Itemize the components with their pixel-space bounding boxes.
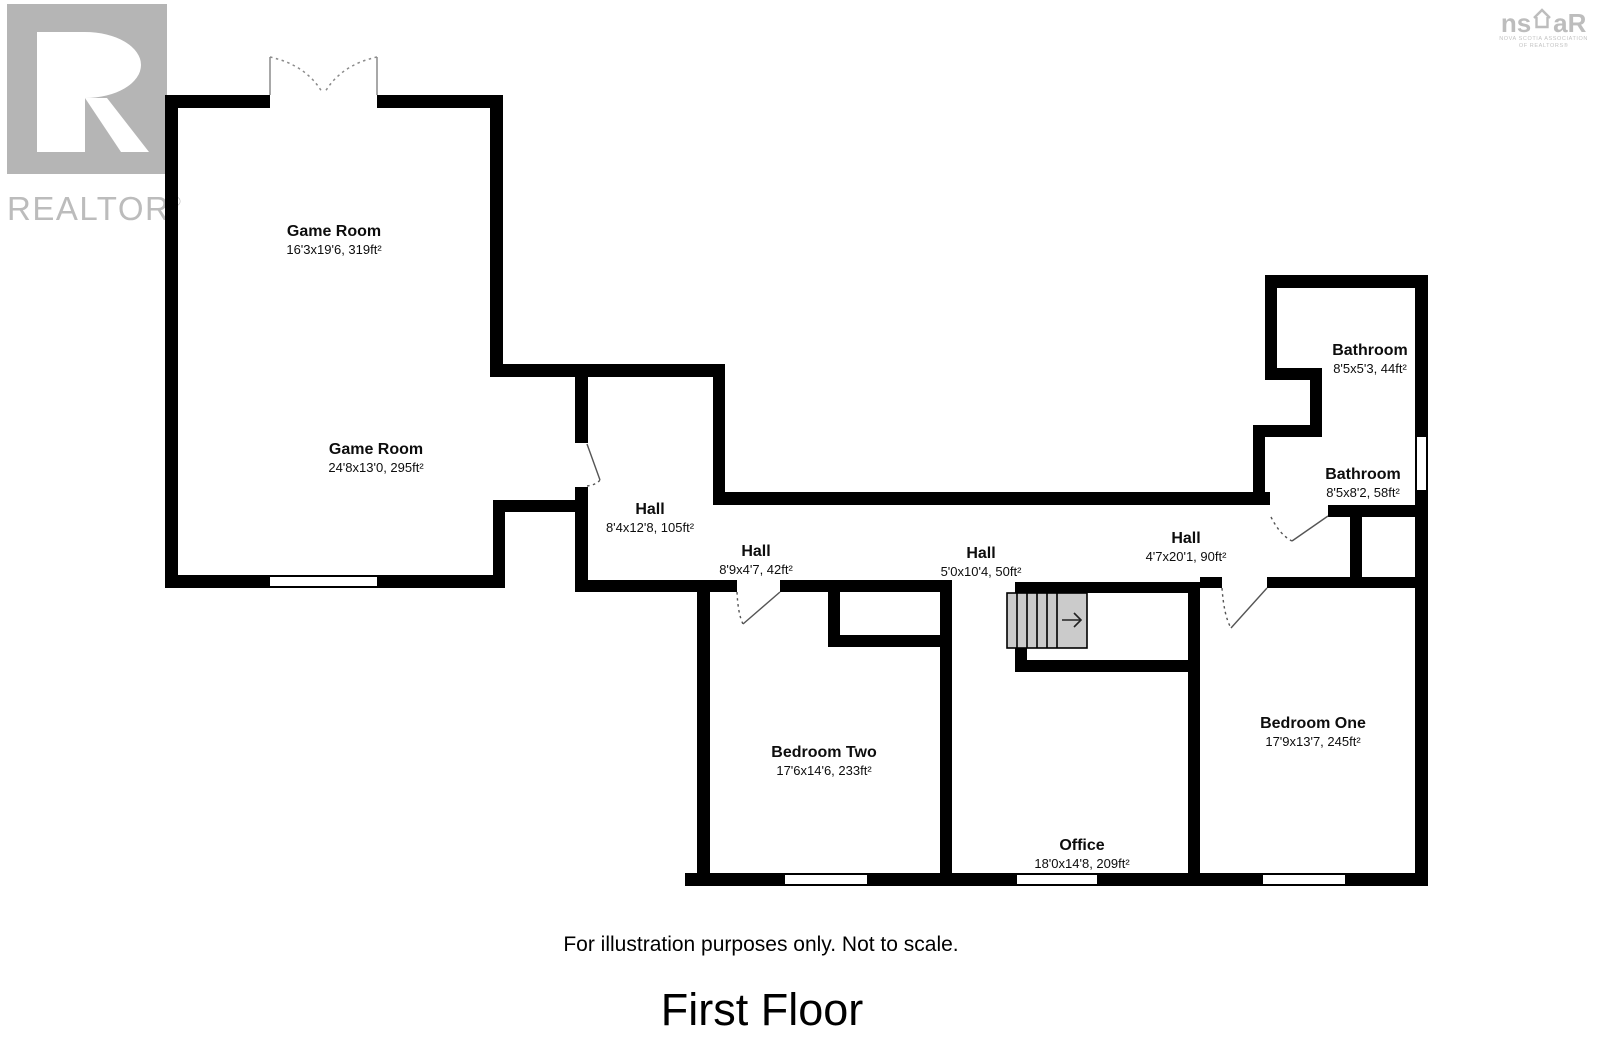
window-office: [1017, 873, 1097, 886]
door-bedroom-one: [1222, 588, 1267, 628]
room-label-bathroom-lower: Bathroom 8'5x8'2, 58ft²: [1325, 465, 1401, 501]
floor-plan-drawing: [0, 0, 1600, 1055]
floor-plan-page: REALTOR® ns aR NOVA SCOTIA ASSOCIATION O…: [0, 0, 1600, 1055]
room-label-hall-east: Hall 4'7x20'1, 90ft²: [1146, 529, 1227, 565]
disclaimer-text: For illustration purposes only. Not to s…: [563, 933, 958, 957]
window-game-room: [270, 575, 377, 588]
room-label-bathroom-upper: Bathroom 8'5x5'3, 44ft²: [1332, 341, 1408, 377]
door-bedroom-two: [737, 592, 780, 624]
window-bedroom-two: [785, 873, 867, 886]
staircase: [1007, 593, 1087, 648]
room-label-hall-center: Hall 5'0x10'4, 50ft²: [941, 544, 1022, 580]
window-bathroom: [1415, 437, 1428, 490]
room-label-game-room-lower: Game Room 24'8x13'0, 295ft²: [328, 440, 423, 476]
window-bedroom-one: [1263, 873, 1345, 886]
door-bathroom: [1271, 516, 1328, 541]
room-label-game-room-upper: Game Room 16'3x19'6, 319ft²: [286, 222, 381, 258]
room-label-bedroom-one: Bedroom One 17'9x13'7, 245ft²: [1260, 714, 1366, 750]
door-hall-game-room: [587, 444, 600, 486]
room-label-hall-main: Hall 8'4x12'8, 105ft²: [606, 500, 694, 536]
room-label-hall-west: Hall 8'9x4'7, 42ft²: [719, 542, 793, 578]
floor-title: First Floor: [661, 984, 864, 1036]
french-door-game-room: [270, 57, 377, 95]
room-label-bedroom-two: Bedroom Two 17'6x14'6, 233ft²: [771, 743, 876, 779]
room-label-office: Office 18'0x14'8, 209ft²: [1034, 836, 1129, 872]
